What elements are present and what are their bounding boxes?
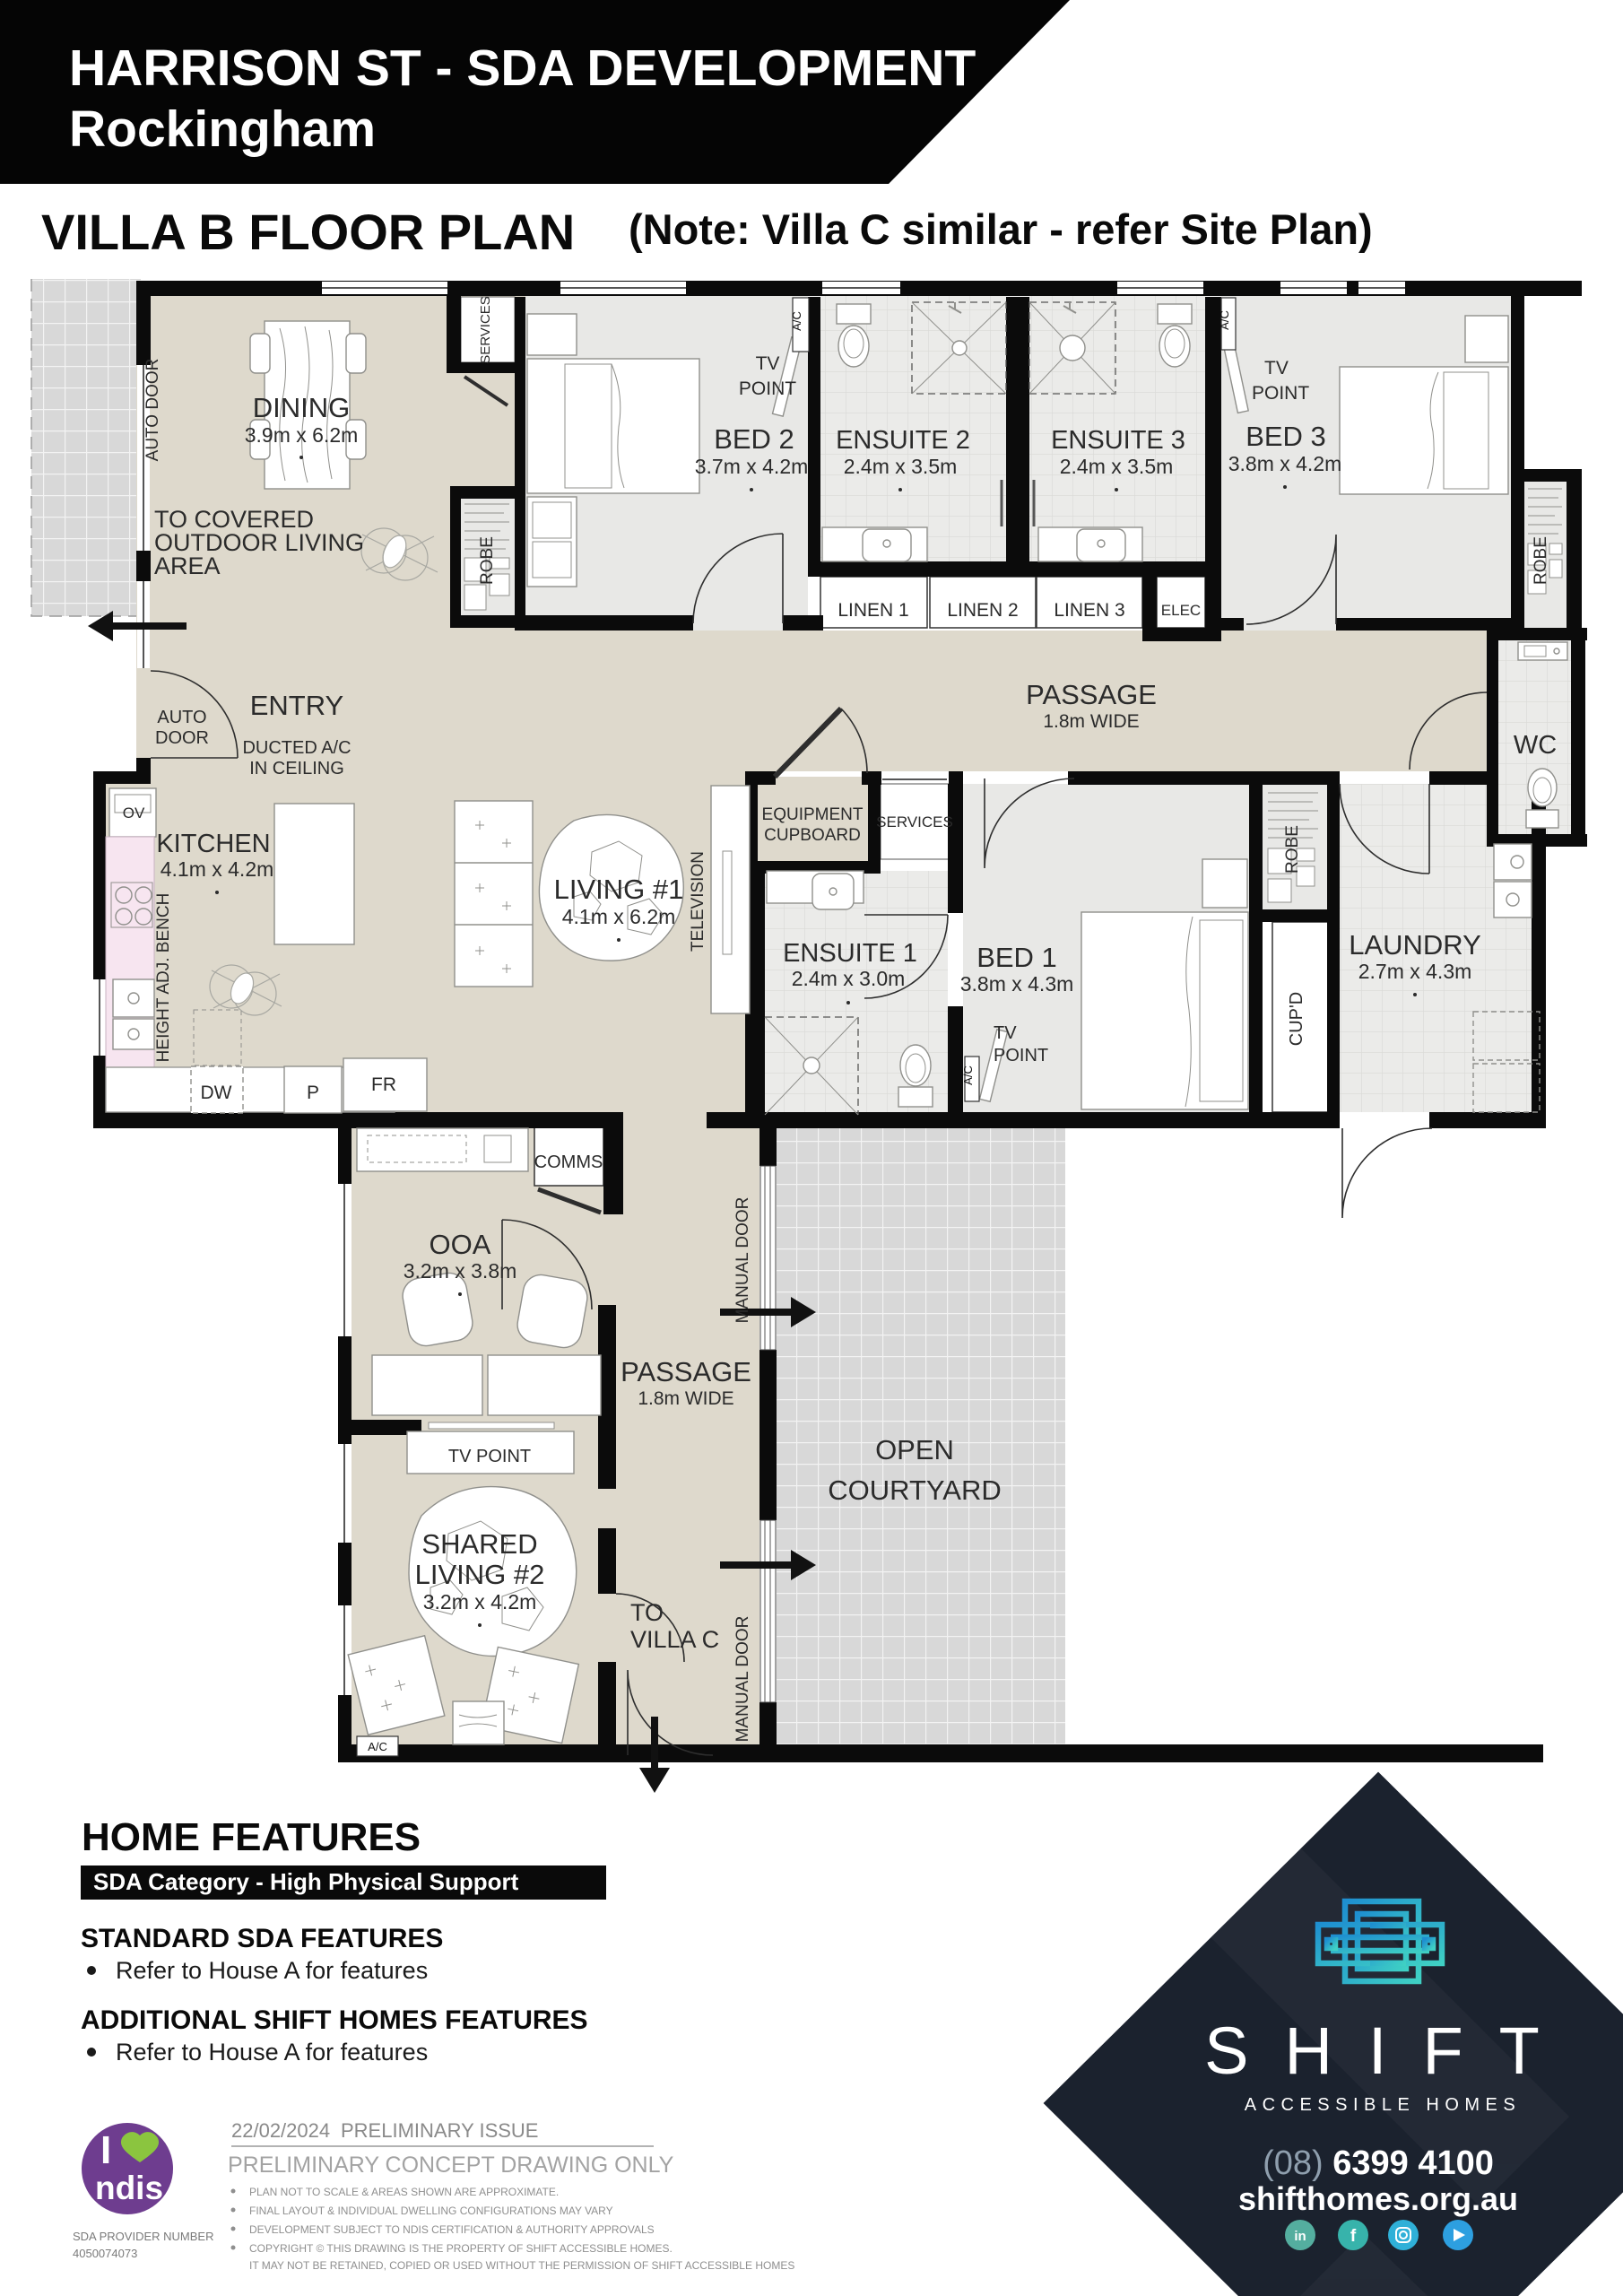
svg-text:OV: OV [123, 804, 145, 822]
svg-text:IN CEILING: IN CEILING [249, 759, 344, 778]
svg-text:SERVICES: SERVICES [876, 813, 953, 831]
svg-text:LIVING #1: LIVING #1 [554, 874, 684, 905]
svg-text:AREA: AREA [154, 552, 221, 579]
svg-text:3.2m x 4.2m: 3.2m x 4.2m [423, 1590, 537, 1613]
svg-text:3.7m x 4.2m: 3.7m x 4.2m [695, 455, 809, 478]
svg-text:ROBE: ROBE [1283, 825, 1302, 874]
svg-text:DINING: DINING [253, 392, 351, 423]
svg-text:3.8m x 4.2m: 3.8m x 4.2m [1228, 452, 1342, 475]
svg-text:Refer to House A for features: Refer to House A for features [116, 1957, 428, 1984]
svg-text:HOME FEATURES: HOME FEATURES [82, 1815, 421, 1859]
svg-text:2.4m x 3.0m: 2.4m x 3.0m [792, 967, 906, 990]
svg-text:HARRISON ST - SDA DEVELOPMENT: HARRISON ST - SDA DEVELOPMENT [69, 39, 976, 97]
svg-text:ndis: ndis [95, 2170, 163, 2206]
svg-text:OOA: OOA [430, 1229, 491, 1260]
svg-text:4.1m x 6.2m: 4.1m x 6.2m [562, 905, 676, 928]
svg-text:ENSUITE 1: ENSUITE 1 [783, 939, 917, 968]
svg-text:3.9m x 6.2m: 3.9m x 6.2m [245, 423, 359, 447]
svg-text:LIVING #2: LIVING #2 [415, 1559, 545, 1590]
svg-text:PLAN NOT TO SCALE & AREAS SHO: PLAN NOT TO SCALE & AREAS SHOWN ARE APPR… [249, 2186, 559, 2198]
svg-text:LINEN 1: LINEN 1 [838, 600, 908, 621]
svg-text:1.8m WIDE: 1.8m WIDE [1043, 711, 1139, 732]
svg-text:COURTYARD: COURTYARD [828, 1474, 1001, 1506]
svg-text:LINEN 3: LINEN 3 [1054, 600, 1124, 621]
svg-text:OPEN: OPEN [875, 1434, 954, 1465]
svg-text:FINAL LAYOUT & INDIVIDUAL DWEL: FINAL LAYOUT & INDIVIDUAL DWELLING CONFI… [249, 2205, 613, 2217]
svg-text:1.8m WIDE: 1.8m WIDE [638, 1388, 733, 1409]
svg-text:3.2m x 3.8m: 3.2m x 3.8m [404, 1259, 517, 1283]
svg-text:STANDARD SDA FEATURES: STANDARD SDA FEATURES [81, 1924, 443, 1953]
svg-text:A/C: A/C [790, 311, 803, 331]
svg-text:BED 2: BED 2 [714, 423, 794, 455]
svg-text:TV POINT: TV POINT [448, 1447, 531, 1466]
svg-text:ENTRY: ENTRY [250, 690, 344, 721]
svg-text:DEVELOPMENT SUBJECT TO NDIS CE: DEVELOPMENT SUBJECT TO NDIS CERTIFICATIO… [249, 2223, 655, 2236]
svg-text:TELEVISION: TELEVISION [689, 851, 707, 952]
svg-text:ROBE: ROBE [1532, 536, 1550, 585]
svg-text:DUCTED A/C: DUCTED A/C [242, 738, 351, 758]
svg-text:f: f [1350, 2227, 1357, 2246]
svg-text:4050074073: 4050074073 [73, 2247, 137, 2260]
svg-text:ROBE: ROBE [478, 536, 497, 585]
svg-text:SDA PROVIDER NUMBER: SDA PROVIDER NUMBER [73, 2230, 213, 2243]
svg-text:CUPBOARD: CUPBOARD [764, 826, 861, 845]
svg-text:DOOR: DOOR [155, 728, 209, 748]
svg-text:SERVICES: SERVICES [478, 296, 493, 364]
svg-text:I: I [100, 2128, 111, 2172]
svg-text:POINT: POINT [739, 378, 796, 399]
svg-text:4.1m x 4.2m: 4.1m x 4.2m [161, 857, 274, 881]
svg-text:IT MAY NOT BE RETAINED, COPIED: IT MAY NOT BE RETAINED, COPIED OR USED W… [249, 2259, 794, 2272]
svg-text:(08) 6399 4100: (08) 6399 4100 [1263, 2144, 1494, 2182]
svg-text:A/C: A/C [1218, 310, 1231, 330]
svg-text:POINT: POINT [1252, 383, 1309, 404]
svg-text:LINEN 2: LINEN 2 [947, 600, 1018, 621]
svg-text:VILLA C: VILLA C [630, 1626, 719, 1653]
svg-text:WC: WC [1514, 731, 1557, 760]
svg-text:COPYRIGHT © THIS DRAWING IS TH: COPYRIGHT © THIS DRAWING IS THE PROPERTY… [249, 2242, 673, 2255]
svg-text:3.8m x 4.3m: 3.8m x 4.3m [960, 972, 1074, 996]
svg-text:COMMS: COMMS [534, 1152, 603, 1172]
svg-text:ELEC: ELEC [1161, 602, 1201, 619]
svg-text:A/C: A/C [961, 1065, 975, 1085]
svg-text:PASSAGE: PASSAGE [1026, 679, 1157, 710]
svg-text:VILLA B FLOOR PLAN: VILLA B FLOOR PLAN [41, 204, 575, 260]
svg-text:in: in [1294, 2229, 1306, 2244]
svg-text:TO: TO [630, 1599, 664, 1626]
svg-text:AUTO: AUTO [157, 708, 206, 727]
svg-text:ENSUITE 2: ENSUITE 2 [836, 426, 970, 455]
svg-text:PRELIMINARY ISSUE: PRELIMINARY ISSUE [341, 2119, 538, 2142]
svg-text:ACCESSIBLE HOMES: ACCESSIBLE HOMES [1245, 2095, 1522, 2115]
svg-text:(Note: Villa C similar - refer: (Note: Villa C similar - refer Site Plan… [629, 205, 1373, 253]
svg-text:DW: DW [201, 1083, 232, 1103]
svg-text:P: P [307, 1083, 319, 1103]
svg-text:FR: FR [371, 1074, 396, 1095]
svg-text:PASSAGE: PASSAGE [621, 1356, 751, 1387]
svg-text:Refer to House A for features: Refer to House A for features [116, 2039, 428, 2066]
svg-text:PRELIMINARY CONCEPT DRAWING ON: PRELIMINARY CONCEPT DRAWING ONLY [228, 2152, 674, 2178]
svg-text:POINT: POINT [994, 1046, 1048, 1065]
svg-text:2.4m x 3.5m: 2.4m x 3.5m [844, 455, 958, 478]
svg-text:MANUAL DOOR: MANUAL DOOR [733, 1616, 752, 1743]
svg-text:A/C: A/C [368, 1740, 387, 1753]
svg-text:LAUNDRY: LAUNDRY [1349, 929, 1481, 961]
svg-text:shifthomes.org.au: shifthomes.org.au [1238, 2180, 1518, 2217]
svg-text:Rockingham: Rockingham [69, 100, 376, 158]
svg-text:22/02/2024: 22/02/2024 [231, 2119, 330, 2142]
svg-text:ADDITIONAL SHIFT HOMES FEATURE: ADDITIONAL SHIFT HOMES FEATURES [81, 2005, 588, 2035]
svg-text:HEIGHT ADJ. BENCH: HEIGHT ADJ. BENCH [154, 893, 173, 1063]
svg-text:2.7m x 4.3m: 2.7m x 4.3m [1358, 960, 1472, 983]
svg-text:BED 1: BED 1 [976, 942, 1057, 973]
svg-text:SDA Category - High Physical S: SDA Category - High Physical Support [93, 1868, 519, 1895]
svg-text:SHIFT: SHIFT [1204, 2013, 1575, 2088]
svg-text:KITCHEN: KITCHEN [156, 830, 270, 858]
svg-text:TV: TV [994, 1023, 1017, 1043]
svg-text:EQUIPMENT: EQUIPMENT [762, 805, 864, 824]
svg-text:2.4m x 3.5m: 2.4m x 3.5m [1060, 455, 1174, 478]
svg-text:ENSUITE 3: ENSUITE 3 [1051, 426, 1185, 455]
svg-text:MANUAL DOOR: MANUAL DOOR [733, 1197, 752, 1324]
svg-text:CUP'D: CUP'D [1287, 992, 1306, 1047]
svg-text:TV: TV [1264, 358, 1289, 378]
svg-text:BED 3: BED 3 [1245, 421, 1326, 452]
svg-text:SHARED: SHARED [421, 1528, 537, 1560]
svg-text:AUTO DOOR: AUTO DOOR [143, 359, 162, 462]
svg-text:TV: TV [756, 353, 780, 374]
